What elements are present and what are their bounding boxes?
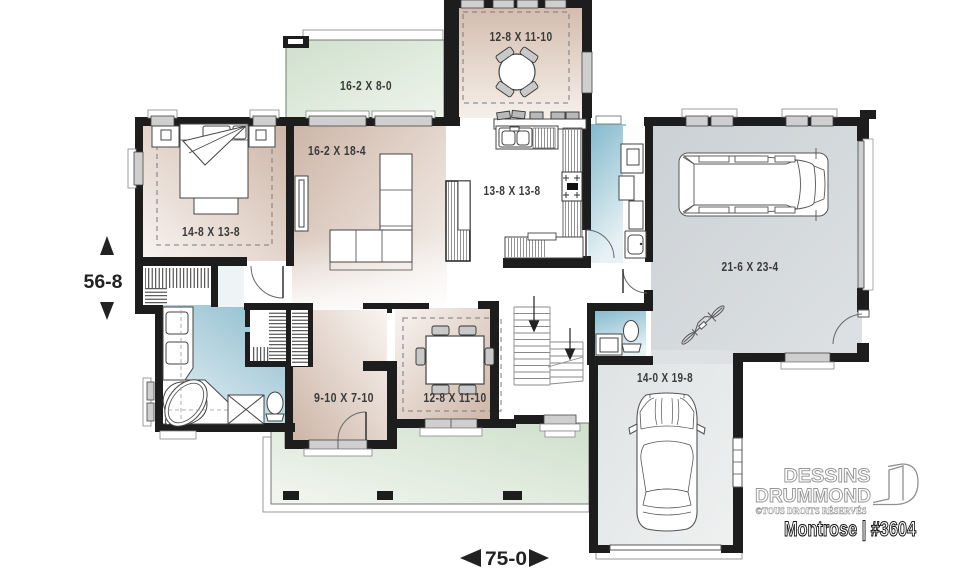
svg-text:©TOUS DROITS RÉSERVÉS: ©TOUS DROITS RÉSERVÉS [756,506,867,516]
svg-text:12-8 X 11-10: 12-8 X 11-10 [424,390,487,405]
svg-text:14-8 X 13-8: 14-8 X 13-8 [182,224,240,239]
svg-text:21-6 X 23-4: 21-6 X 23-4 [722,259,779,274]
svg-text:13-8 X 13-8: 13-8 X 13-8 [484,183,541,198]
svg-text:16-2 X 8-0: 16-2 X 8-0 [340,78,392,93]
svg-text:14-0 X 19-8: 14-0 X 19-8 [637,370,693,385]
svg-text:16-2 X 18-4: 16-2 X 18-4 [308,143,366,158]
svg-text:56-8: 56-8 [84,272,123,293]
svg-text:9-10 X 7-10: 9-10 X 7-10 [314,390,374,405]
svg-text:DESSINS: DESSINS [784,466,871,487]
svg-text:DRUMMOND: DRUMMOND [755,486,871,507]
svg-text:75-0: 75-0 [485,549,527,569]
svg-text:Montrose | #3604: Montrose | #3604 [784,518,916,541]
svg-text:12-8 X 11-10: 12-8 X 11-10 [490,29,553,44]
